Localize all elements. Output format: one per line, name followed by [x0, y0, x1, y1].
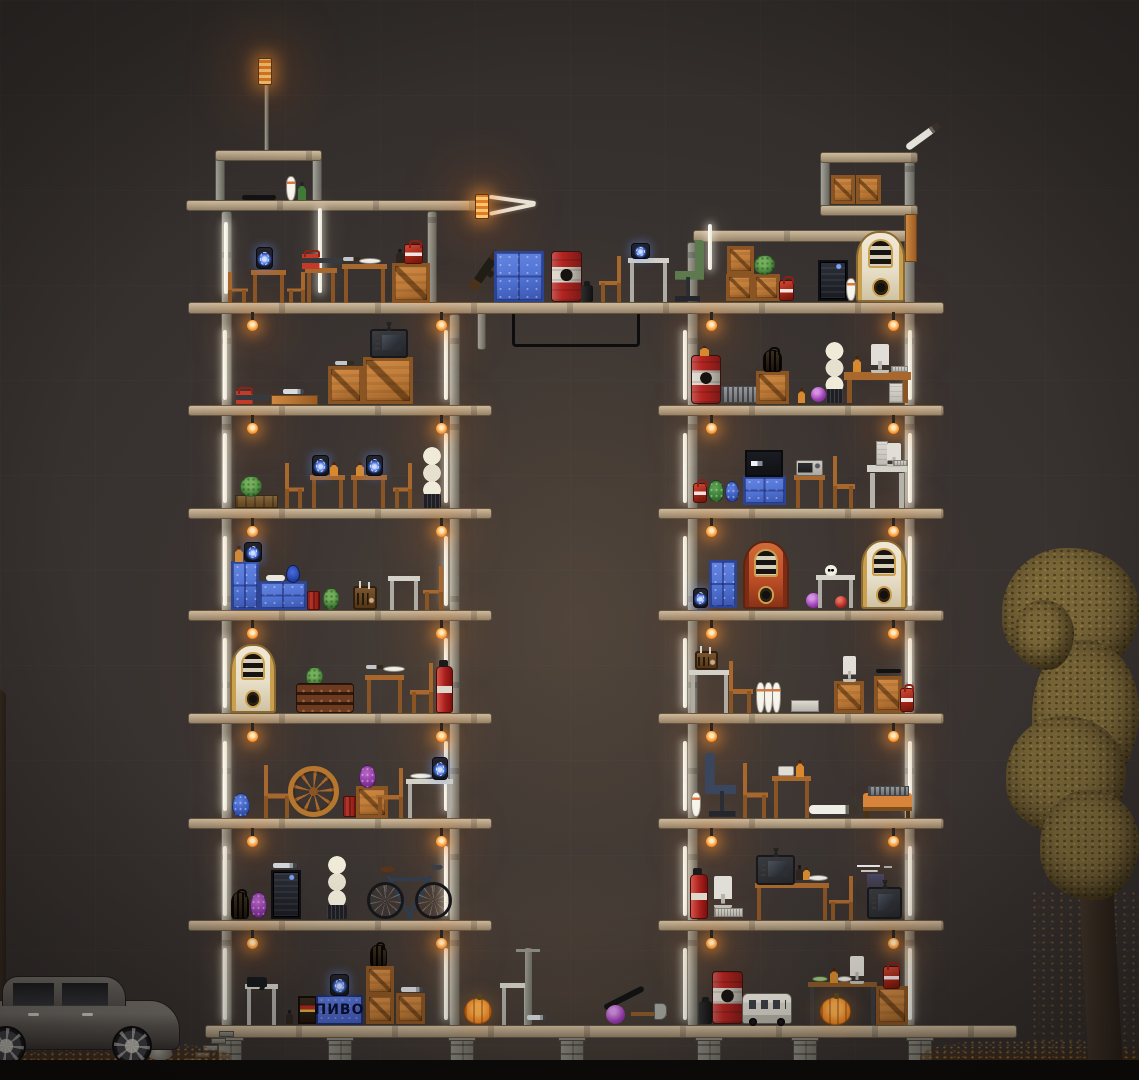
blue-crate[interactable] — [709, 560, 737, 608]
white-desk[interactable] — [867, 465, 907, 508]
floor-3-shelf-left — [188, 508, 492, 519]
blue-crate[interactable] — [494, 251, 544, 302]
wooden-chair[interactable] — [393, 463, 412, 508]
server-rack[interactable] — [818, 260, 848, 301]
blue-crate[interactable] — [231, 561, 259, 610]
white-box[interactable] — [778, 766, 794, 776]
machete[interactable] — [905, 122, 941, 151]
string-bulb[interactable] — [436, 320, 447, 331]
keyboard[interactable] — [714, 908, 743, 917]
chainsaw[interactable] — [236, 391, 273, 404]
lantern[interactable] — [763, 350, 782, 372]
explosive-barrel[interactable] — [551, 251, 582, 302]
tube-light[interactable] — [444, 433, 448, 503]
tube-light[interactable] — [223, 948, 227, 1020]
wagon-wheel[interactable] — [288, 766, 339, 817]
white-table[interactable] — [689, 670, 730, 713]
tube-light[interactable] — [223, 741, 227, 811]
wooden-crate[interactable] — [392, 263, 430, 303]
green-egg[interactable] — [708, 480, 724, 502]
string-bulb[interactable] — [888, 423, 899, 434]
floor-4-shelf-left — [188, 610, 492, 621]
floor-6-shelf-left — [188, 818, 492, 829]
game-viewport: ПИВО — [0, 0, 1139, 1080]
jukebox[interactable] — [856, 231, 905, 302]
right-roof-beam — [820, 152, 918, 163]
metal-table[interactable] — [628, 258, 669, 302]
crowbar[interactable] — [242, 195, 276, 200]
penthouse-column — [215, 158, 225, 202]
blue-vase[interactable] — [286, 565, 300, 583]
right-penthouse-floor-beam — [820, 205, 918, 216]
tesla-lamp[interactable] — [330, 974, 349, 996]
chainsaw[interactable] — [302, 254, 342, 269]
wooden-table[interactable] — [342, 264, 387, 303]
plate[interactable] — [359, 258, 381, 264]
pole-lamp[interactable] — [258, 58, 272, 85]
wooden-table[interactable] — [794, 475, 825, 508]
bone[interactable] — [266, 575, 285, 581]
tube-light[interactable] — [708, 224, 712, 270]
string-bulb[interactable] — [247, 628, 258, 639]
hanging-cable — [512, 314, 640, 347]
string-bulb[interactable] — [247, 526, 258, 537]
floor-5-shelf-left — [188, 713, 492, 724]
monitor[interactable] — [714, 876, 732, 908]
string-bulb[interactable] — [888, 836, 899, 847]
penthouse-column — [820, 160, 830, 207]
tube-light[interactable] — [444, 536, 448, 606]
ground-deck — [205, 1025, 1017, 1038]
string-bulb[interactable] — [706, 423, 717, 434]
tv-hologram — [857, 865, 894, 876]
crowbar[interactable] — [876, 669, 901, 673]
black-canister[interactable] — [581, 285, 593, 302]
bicycle[interactable] — [367, 865, 452, 919]
monitor[interactable] — [850, 956, 864, 984]
toy-minibus[interactable] — [742, 993, 792, 1024]
axe[interactable] — [631, 1003, 667, 1024]
wooden-crate[interactable] — [366, 994, 394, 1024]
purple-ball[interactable] — [606, 1005, 625, 1024]
sphere-lamp[interactable] — [825, 341, 844, 403]
microwave[interactable] — [796, 460, 823, 476]
purple-egg[interactable] — [250, 892, 267, 918]
gas-can[interactable] — [693, 483, 707, 503]
string-bulb[interactable] — [706, 731, 717, 742]
keyboard[interactable] — [893, 460, 908, 466]
pc-tower[interactable] — [889, 383, 903, 403]
tube-light[interactable] — [683, 741, 687, 811]
purple-ball[interactable] — [811, 387, 826, 402]
skull[interactable] — [825, 565, 837, 576]
tube-light[interactable] — [223, 846, 227, 916]
wooden-table[interactable] — [251, 270, 286, 303]
lantern[interactable] — [370, 945, 387, 967]
bottle[interactable] — [235, 546, 243, 562]
stair-step — [211, 1038, 226, 1044]
wooden-chair[interactable] — [228, 272, 248, 303]
string-bulb[interactable] — [247, 836, 258, 847]
string-bulb[interactable] — [247, 320, 258, 331]
wooden-crate[interactable] — [396, 993, 425, 1024]
wooden-crate[interactable] — [756, 371, 789, 404]
string-bulb[interactable] — [436, 526, 447, 537]
apple[interactable] — [835, 596, 847, 608]
tube-light[interactable] — [908, 433, 912, 503]
string-bulb[interactable] — [888, 320, 899, 331]
wooden-crate[interactable] — [753, 274, 780, 301]
bridge-stub-column — [477, 312, 486, 350]
wooden-chair[interactable] — [376, 768, 403, 818]
wooden-crate[interactable] — [876, 986, 908, 1025]
syringe[interactable] — [527, 1015, 546, 1020]
pumpkin[interactable] — [820, 997, 851, 1025]
knife[interactable] — [366, 665, 383, 669]
wooden-crate[interactable] — [874, 676, 902, 713]
gas-can[interactable] — [883, 966, 900, 989]
floor-4-shelf-right — [658, 610, 944, 621]
wooden-table[interactable] — [305, 268, 337, 303]
radio[interactable] — [353, 586, 377, 610]
tesla-lamp[interactable] — [244, 542, 262, 562]
tube-light[interactable] — [223, 536, 227, 606]
floor-7-shelf-right — [658, 920, 944, 931]
red-bin[interactable] — [307, 591, 320, 610]
wooden-chair[interactable] — [729, 661, 753, 713]
wooden-chair[interactable] — [829, 876, 853, 920]
bench[interactable] — [863, 793, 912, 818]
wooden-crate[interactable] — [328, 366, 363, 404]
floor-2-shelf-left — [188, 405, 492, 416]
beam-end-lamp[interactable] — [475, 194, 489, 219]
wooden-crate[interactable] — [856, 175, 881, 204]
crt-tv[interactable] — [867, 887, 902, 919]
plant[interactable] — [240, 476, 262, 497]
string-bulb[interactable] — [706, 320, 717, 331]
jukebox[interactable] — [230, 644, 276, 713]
syringe[interactable] — [283, 389, 304, 394]
tube-light[interactable] — [444, 948, 448, 1020]
lamp-pole — [264, 84, 269, 152]
tube-light[interactable] — [223, 433, 227, 503]
white-table[interactable] — [388, 576, 420, 610]
tv-screen[interactable] — [745, 450, 783, 477]
white-brick[interactable] — [791, 700, 819, 712]
tree-foliage — [1014, 600, 1074, 670]
battery-device[interactable] — [631, 243, 650, 259]
wooden-table[interactable] — [310, 475, 345, 508]
office-chair[interactable] — [705, 753, 739, 817]
tube-light[interactable] — [223, 638, 227, 708]
string-bulb[interactable] — [436, 423, 447, 434]
floor-5-shelf-right — [658, 713, 944, 724]
door-handle — [82, 1013, 93, 1016]
wooden-chair[interactable] — [599, 256, 621, 302]
tube-light[interactable] — [223, 330, 227, 400]
jukebox[interactable] — [861, 540, 907, 609]
wood-board[interactable] — [271, 395, 318, 405]
string-bulb[interactable] — [436, 628, 447, 639]
ground — [0, 1060, 1139, 1080]
log-pile[interactable] — [296, 683, 354, 713]
explosive-barrel[interactable] — [712, 971, 743, 1024]
sphere-lamp[interactable] — [422, 446, 442, 508]
string-bulb[interactable] — [888, 526, 899, 537]
tube-light[interactable] — [683, 846, 687, 916]
tube-light[interactable] — [908, 536, 912, 606]
bowling-pin[interactable] — [286, 176, 296, 201]
bowling-pin[interactable] — [846, 278, 856, 301]
car-body[interactable] — [0, 1000, 180, 1050]
wooden-table[interactable] — [365, 675, 404, 713]
door-handle — [28, 1013, 39, 1016]
penthouse-floor-beam — [186, 200, 478, 211]
wooden-chair[interactable] — [285, 463, 304, 508]
string-bulb[interactable] — [247, 938, 258, 949]
beer-box[interactable]: ПИВО — [316, 995, 363, 1025]
white-table[interactable] — [406, 779, 453, 818]
tube-light[interactable] — [683, 536, 687, 606]
pumpkin[interactable] — [464, 998, 492, 1024]
tube-light[interactable] — [683, 948, 687, 1020]
tube-light[interactable] — [683, 638, 687, 708]
tesla-lamp[interactable] — [312, 455, 329, 476]
floor-2-shelf-right — [658, 405, 944, 416]
white-table[interactable] — [245, 984, 278, 1025]
red-canister[interactable] — [343, 796, 357, 817]
crt-tv[interactable] — [370, 329, 408, 358]
sphere-lamp[interactable] — [326, 855, 348, 919]
tube-light[interactable] — [444, 330, 448, 400]
wooden-crate[interactable] — [834, 681, 864, 713]
syringe[interactable] — [273, 863, 297, 868]
wooden-chair[interactable] — [743, 763, 768, 818]
black-canister[interactable] — [699, 1001, 712, 1024]
knife[interactable] — [343, 257, 360, 261]
explosive-barrel[interactable] — [691, 355, 721, 404]
penthouse-column — [312, 158, 322, 202]
wooden-table[interactable] — [351, 475, 387, 508]
wooden-table[interactable] — [772, 776, 811, 818]
wooden-chair[interactable] — [833, 456, 855, 508]
knife[interactable] — [335, 361, 354, 365]
blue-egg[interactable] — [232, 793, 250, 817]
wooden-crate[interactable] — [363, 357, 413, 404]
keyboard[interactable] — [891, 366, 908, 372]
plate[interactable] — [383, 666, 405, 672]
stair-step — [219, 1031, 234, 1037]
game-scene[interactable]: ПИВО — [0, 0, 1139, 1080]
lantern[interactable] — [231, 892, 249, 919]
bowling-pin[interactable] — [772, 682, 781, 713]
plate[interactable] — [410, 773, 432, 779]
string-bulb[interactable] — [247, 731, 258, 742]
monitor[interactable] — [871, 344, 889, 373]
tube-light[interactable] — [908, 948, 912, 1020]
bottle[interactable] — [298, 182, 306, 200]
wood-plank[interactable] — [905, 214, 917, 262]
tesla-lamp[interactable] — [366, 455, 383, 476]
tube-light[interactable] — [683, 330, 687, 400]
string-bulb[interactable] — [706, 628, 717, 639]
blue-crate[interactable] — [743, 476, 786, 505]
fire-extinguisher[interactable] — [690, 874, 708, 919]
blue-crate[interactable] — [259, 581, 307, 610]
string-bulb[interactable] — [436, 836, 447, 847]
string-bulb[interactable] — [706, 938, 717, 949]
metal-grate[interactable] — [868, 786, 909, 796]
plate[interactable] — [808, 875, 828, 881]
floor-7-shelf-left — [188, 920, 492, 931]
tube-light[interactable] — [683, 433, 687, 503]
syringe[interactable] — [401, 987, 423, 992]
gas-can[interactable] — [779, 280, 794, 301]
wooden-crate[interactable] — [366, 966, 394, 995]
floor-6-shelf-right — [658, 818, 944, 829]
planter-box[interactable] — [235, 495, 278, 508]
tesla-lamp[interactable] — [693, 588, 708, 608]
wooden-chair[interactable] — [410, 663, 433, 713]
floor-stand[interactable] — [525, 948, 532, 1025]
crt-tv[interactable] — [756, 855, 795, 885]
metal-grate[interactable] — [721, 386, 758, 403]
string-bulb[interactable] — [706, 526, 717, 537]
floor-3-shelf-right — [658, 508, 944, 519]
penthouse-roof-beam — [215, 150, 322, 161]
string-bulb[interactable] — [436, 731, 447, 742]
radio[interactable] — [695, 651, 718, 670]
sword[interactable] — [809, 805, 858, 814]
green-plate[interactable] — [812, 976, 828, 982]
fire-extinguisher[interactable] — [436, 666, 453, 713]
bowling-pin[interactable] — [691, 792, 701, 817]
wooden-chair[interactable] — [423, 566, 443, 610]
gas-can[interactable] — [900, 688, 914, 712]
server-rack[interactable] — [271, 870, 301, 919]
wooden-crate[interactable] — [726, 274, 753, 301]
red-jukebox[interactable] — [743, 541, 789, 609]
tree-foliage — [1040, 790, 1139, 900]
string-bulb[interactable] — [888, 731, 899, 742]
string-bulb[interactable] — [436, 938, 447, 949]
wooden-chair[interactable] — [287, 272, 305, 303]
string-bulb[interactable] — [888, 938, 899, 949]
pistol[interactable] — [247, 977, 267, 987]
monitor[interactable] — [843, 656, 856, 682]
blue-egg[interactable] — [725, 481, 739, 502]
purple-egg[interactable] — [359, 765, 376, 788]
car-cabin[interactable] — [2, 976, 126, 1006]
tesla-lamp[interactable] — [256, 247, 273, 269]
floor-1-shelf — [188, 302, 944, 314]
gas-can[interactable] — [404, 244, 423, 264]
string-bulb[interactable] — [888, 628, 899, 639]
string-bulb[interactable] — [706, 836, 717, 847]
string-bulb[interactable] — [247, 423, 258, 434]
tesla-lamp[interactable] — [432, 757, 448, 780]
wooden-table[interactable] — [755, 883, 829, 920]
wooden-chair[interactable] — [264, 765, 291, 818]
tube-light[interactable] — [908, 846, 912, 916]
office-chair[interactable] — [672, 240, 704, 302]
wooden-crate[interactable] — [831, 175, 855, 204]
wooden-crate[interactable] — [727, 246, 754, 274]
